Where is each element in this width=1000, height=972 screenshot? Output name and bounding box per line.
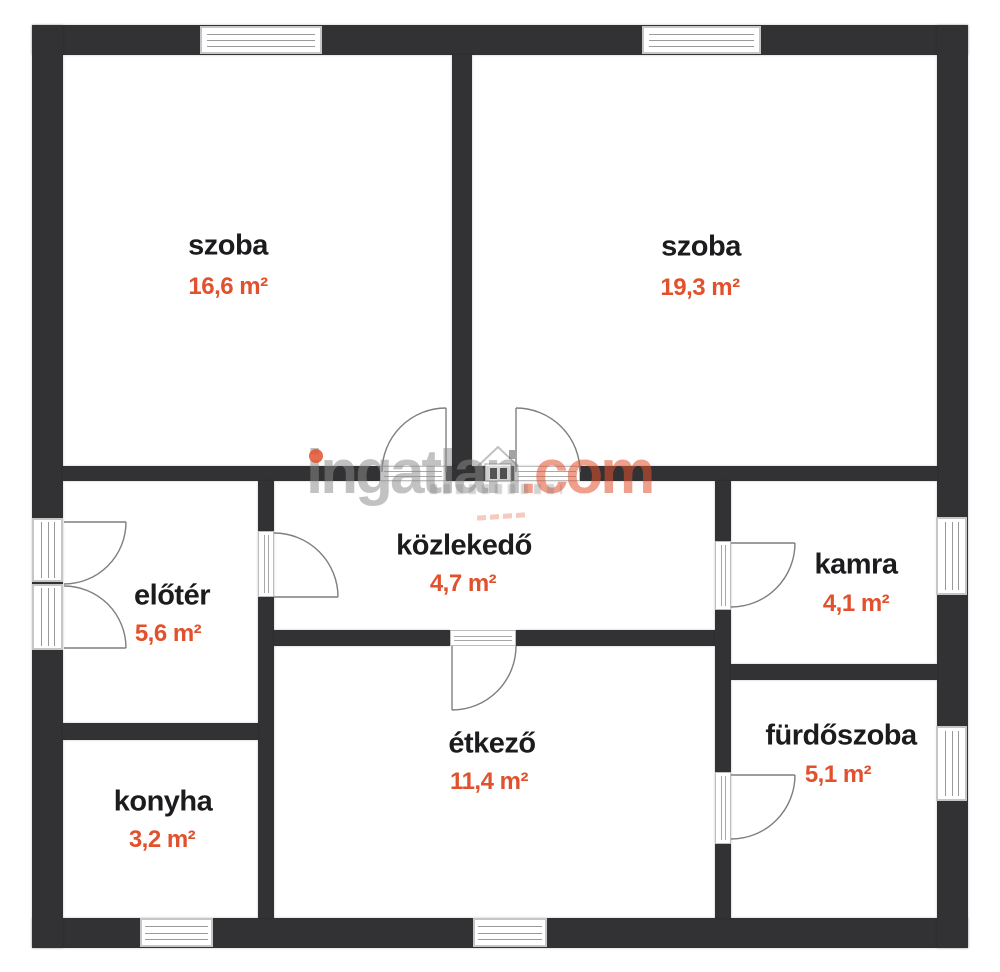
- glazing-line: [54, 522, 55, 577]
- glazing-line: [384, 471, 443, 472]
- glazing-line: [721, 545, 722, 607]
- room-area-etkezo: 11,4 m²: [450, 768, 528, 796]
- glazing-line: [649, 40, 755, 41]
- window-szoba1-top: [200, 26, 322, 54]
- outer-wall-top: [32, 25, 968, 55]
- room-label-szoba-2: szoba: [661, 231, 741, 264]
- glazing-line: [145, 939, 208, 940]
- entry-door-upper-leaf-swing-arc: [64, 522, 126, 584]
- room-label-kozlekedo: közlekedő: [396, 530, 532, 563]
- glazing-line: [478, 933, 542, 934]
- glazing-line: [952, 522, 953, 590]
- glazing-line: [207, 34, 316, 35]
- wall-kozlekedo-etkezo-west: [274, 630, 450, 646]
- window-etkezo-bottom: [473, 918, 547, 947]
- glazing-line: [958, 731, 959, 796]
- glazing-line: [725, 776, 726, 840]
- glazing-line: [48, 588, 49, 645]
- doorway-szoba1-sill: [380, 466, 446, 481]
- door-szoba2: [516, 408, 580, 472]
- watermark-scribble: [477, 512, 525, 520]
- glazing-line: [41, 588, 42, 645]
- outer-wall-right: [937, 25, 968, 948]
- door-kamra-swing-arc: [731, 543, 795, 607]
- window-szoba2-top: [642, 26, 761, 54]
- wall-kozlekedo-etkezo-east: [516, 630, 715, 646]
- door-kozlekedo-etkezo-swing-arc: [452, 646, 516, 710]
- glazing-line: [945, 522, 946, 590]
- glazing-line: [649, 34, 755, 35]
- door-elotter-kozlekedo: [274, 533, 338, 597]
- watermark-subtext: [430, 484, 562, 494]
- doorway-etkezo-sill: [450, 630, 516, 646]
- glazing-line: [721, 776, 722, 840]
- room-area-szoba-1: 16,6 m²: [188, 273, 267, 301]
- glazing-line: [725, 545, 726, 607]
- watermark-i-dot: [309, 449, 323, 463]
- room-label-furdoszoba: fürdőszoba: [765, 720, 916, 753]
- room-area-szoba-2: 19,3 m²: [660, 274, 739, 302]
- glazing-line: [145, 933, 208, 934]
- entry-door-upper-leaf: [64, 522, 126, 584]
- glazing-line: [454, 640, 513, 641]
- window-konyha-bottom: [140, 918, 213, 947]
- room-label-kamra: kamra: [815, 549, 898, 582]
- glazing-line: [518, 471, 577, 472]
- entry-door-sill-lower: [32, 584, 63, 650]
- doorway-elotter-sill: [258, 531, 274, 597]
- room-area-furdoszoba: 5,1 m²: [805, 761, 871, 789]
- entry-door-lower-leaf: [64, 586, 126, 648]
- door-kamra: [731, 543, 795, 607]
- door-szoba1-swing-arc: [382, 408, 446, 472]
- door-szoba1: [382, 408, 446, 472]
- glazing-line: [48, 522, 49, 577]
- glazing-line: [207, 40, 316, 41]
- glazing-line: [454, 636, 513, 637]
- room-area-kamra: 4,1 m²: [823, 590, 889, 618]
- room-label-konyha: konyha: [114, 786, 213, 819]
- room-area-kozlekedo: 4,7 m²: [430, 570, 496, 598]
- glazing-line: [478, 926, 542, 927]
- door-furdoszoba: [731, 775, 795, 839]
- door-kozlekedo-etkezo: [452, 646, 516, 710]
- glazing-line: [145, 926, 208, 927]
- glazing-line: [478, 939, 542, 940]
- entry-door-sill-upper: [32, 518, 63, 582]
- room-label-etkezo: étkező: [448, 728, 535, 761]
- entry-door-lower-leaf-swing-arc: [64, 586, 126, 648]
- room-area-eloter: 5,6 m²: [135, 620, 201, 648]
- glazing-line: [268, 535, 269, 594]
- doorway-furdoszoba-sill: [715, 772, 731, 844]
- glazing-line: [952, 731, 953, 796]
- door-szoba2-swing-arc: [516, 408, 580, 472]
- room-area-konyha: 3,2 m²: [129, 826, 195, 854]
- doorway-szoba2-sill: [514, 466, 580, 481]
- glazing-line: [958, 522, 959, 590]
- doorway-kamra-sill: [715, 541, 731, 610]
- glazing-line: [945, 731, 946, 796]
- floor-plan: szoba16,6 m²szoba19,3 m²előtér5,6 m²közl…: [0, 0, 1000, 972]
- window-furdoszoba-right: [936, 726, 967, 801]
- glazing-line: [264, 535, 265, 594]
- room-label-szoba-1: szoba: [188, 230, 268, 263]
- glazing-line: [384, 476, 443, 477]
- window-kamra-right: [936, 517, 967, 595]
- wall-kamra-bottom: [731, 664, 937, 680]
- outer-wall-left: [32, 25, 63, 948]
- door-furdoszoba-swing-arc: [731, 775, 795, 839]
- wall-elotter-konyha: [63, 723, 258, 740]
- wall-szoba-divider: [452, 55, 472, 481]
- glazing-line: [207, 46, 316, 47]
- glazing-line: [54, 588, 55, 645]
- room-label-eloter: előtér: [134, 580, 210, 613]
- glazing-line: [41, 522, 42, 577]
- door-elotter-kozlekedo-swing-arc: [274, 533, 338, 597]
- wall-middle-horizontal: [63, 466, 937, 481]
- glazing-line: [518, 476, 577, 477]
- glazing-line: [649, 46, 755, 47]
